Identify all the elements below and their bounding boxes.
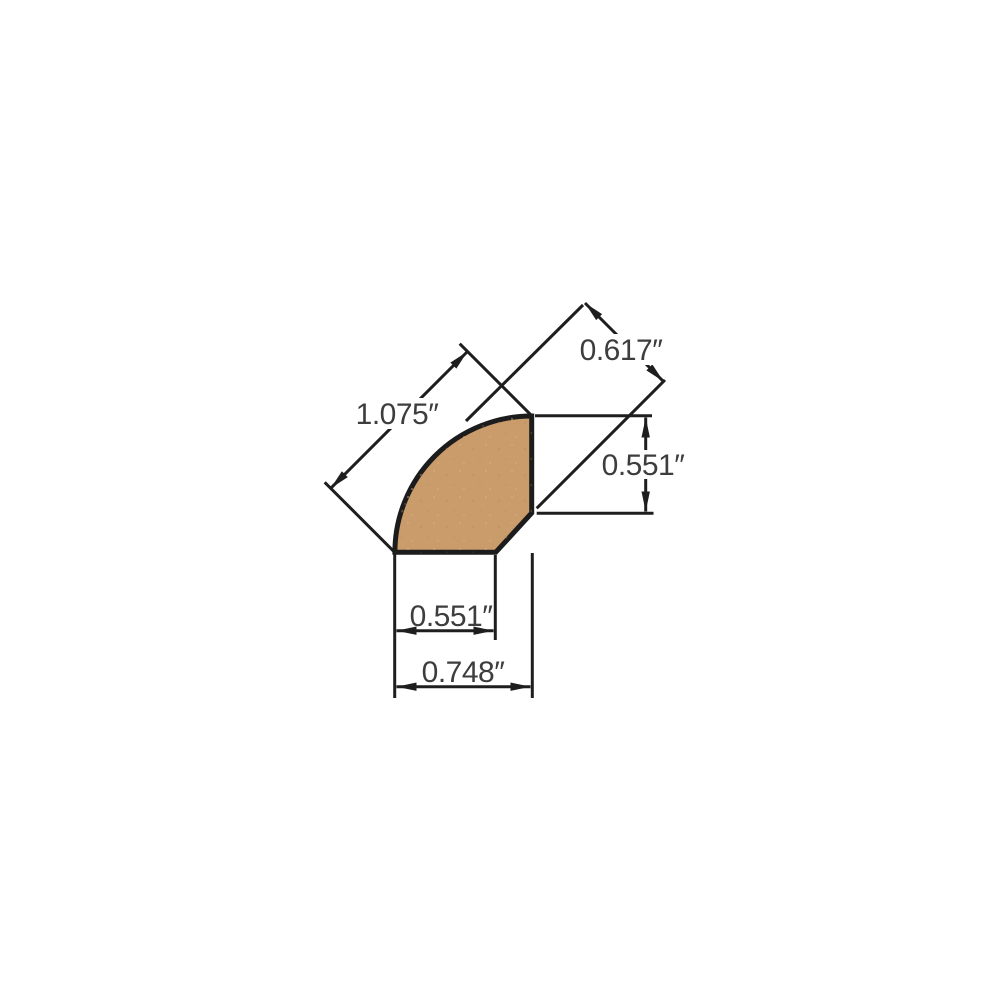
dimension-label-bottom-flat-width: 0.551″ bbox=[410, 600, 494, 633]
drawing-canvas: 1.075″ 0.617″ 0.551″ 0.551″ 0.748″ bbox=[0, 0, 1000, 1000]
profile-dimension-diagram: 1.075″ 0.617″ 0.551″ 0.551″ 0.748″ bbox=[0, 0, 1000, 1000]
dimension-label-overall-width: 0.748″ bbox=[422, 656, 506, 689]
dimension-label-side-height: 0.551″ bbox=[602, 449, 686, 482]
dimension-label-back-thickness: 0.617″ bbox=[580, 334, 664, 367]
dimension-label-diagonal-face-width: 1.075″ bbox=[356, 398, 440, 431]
